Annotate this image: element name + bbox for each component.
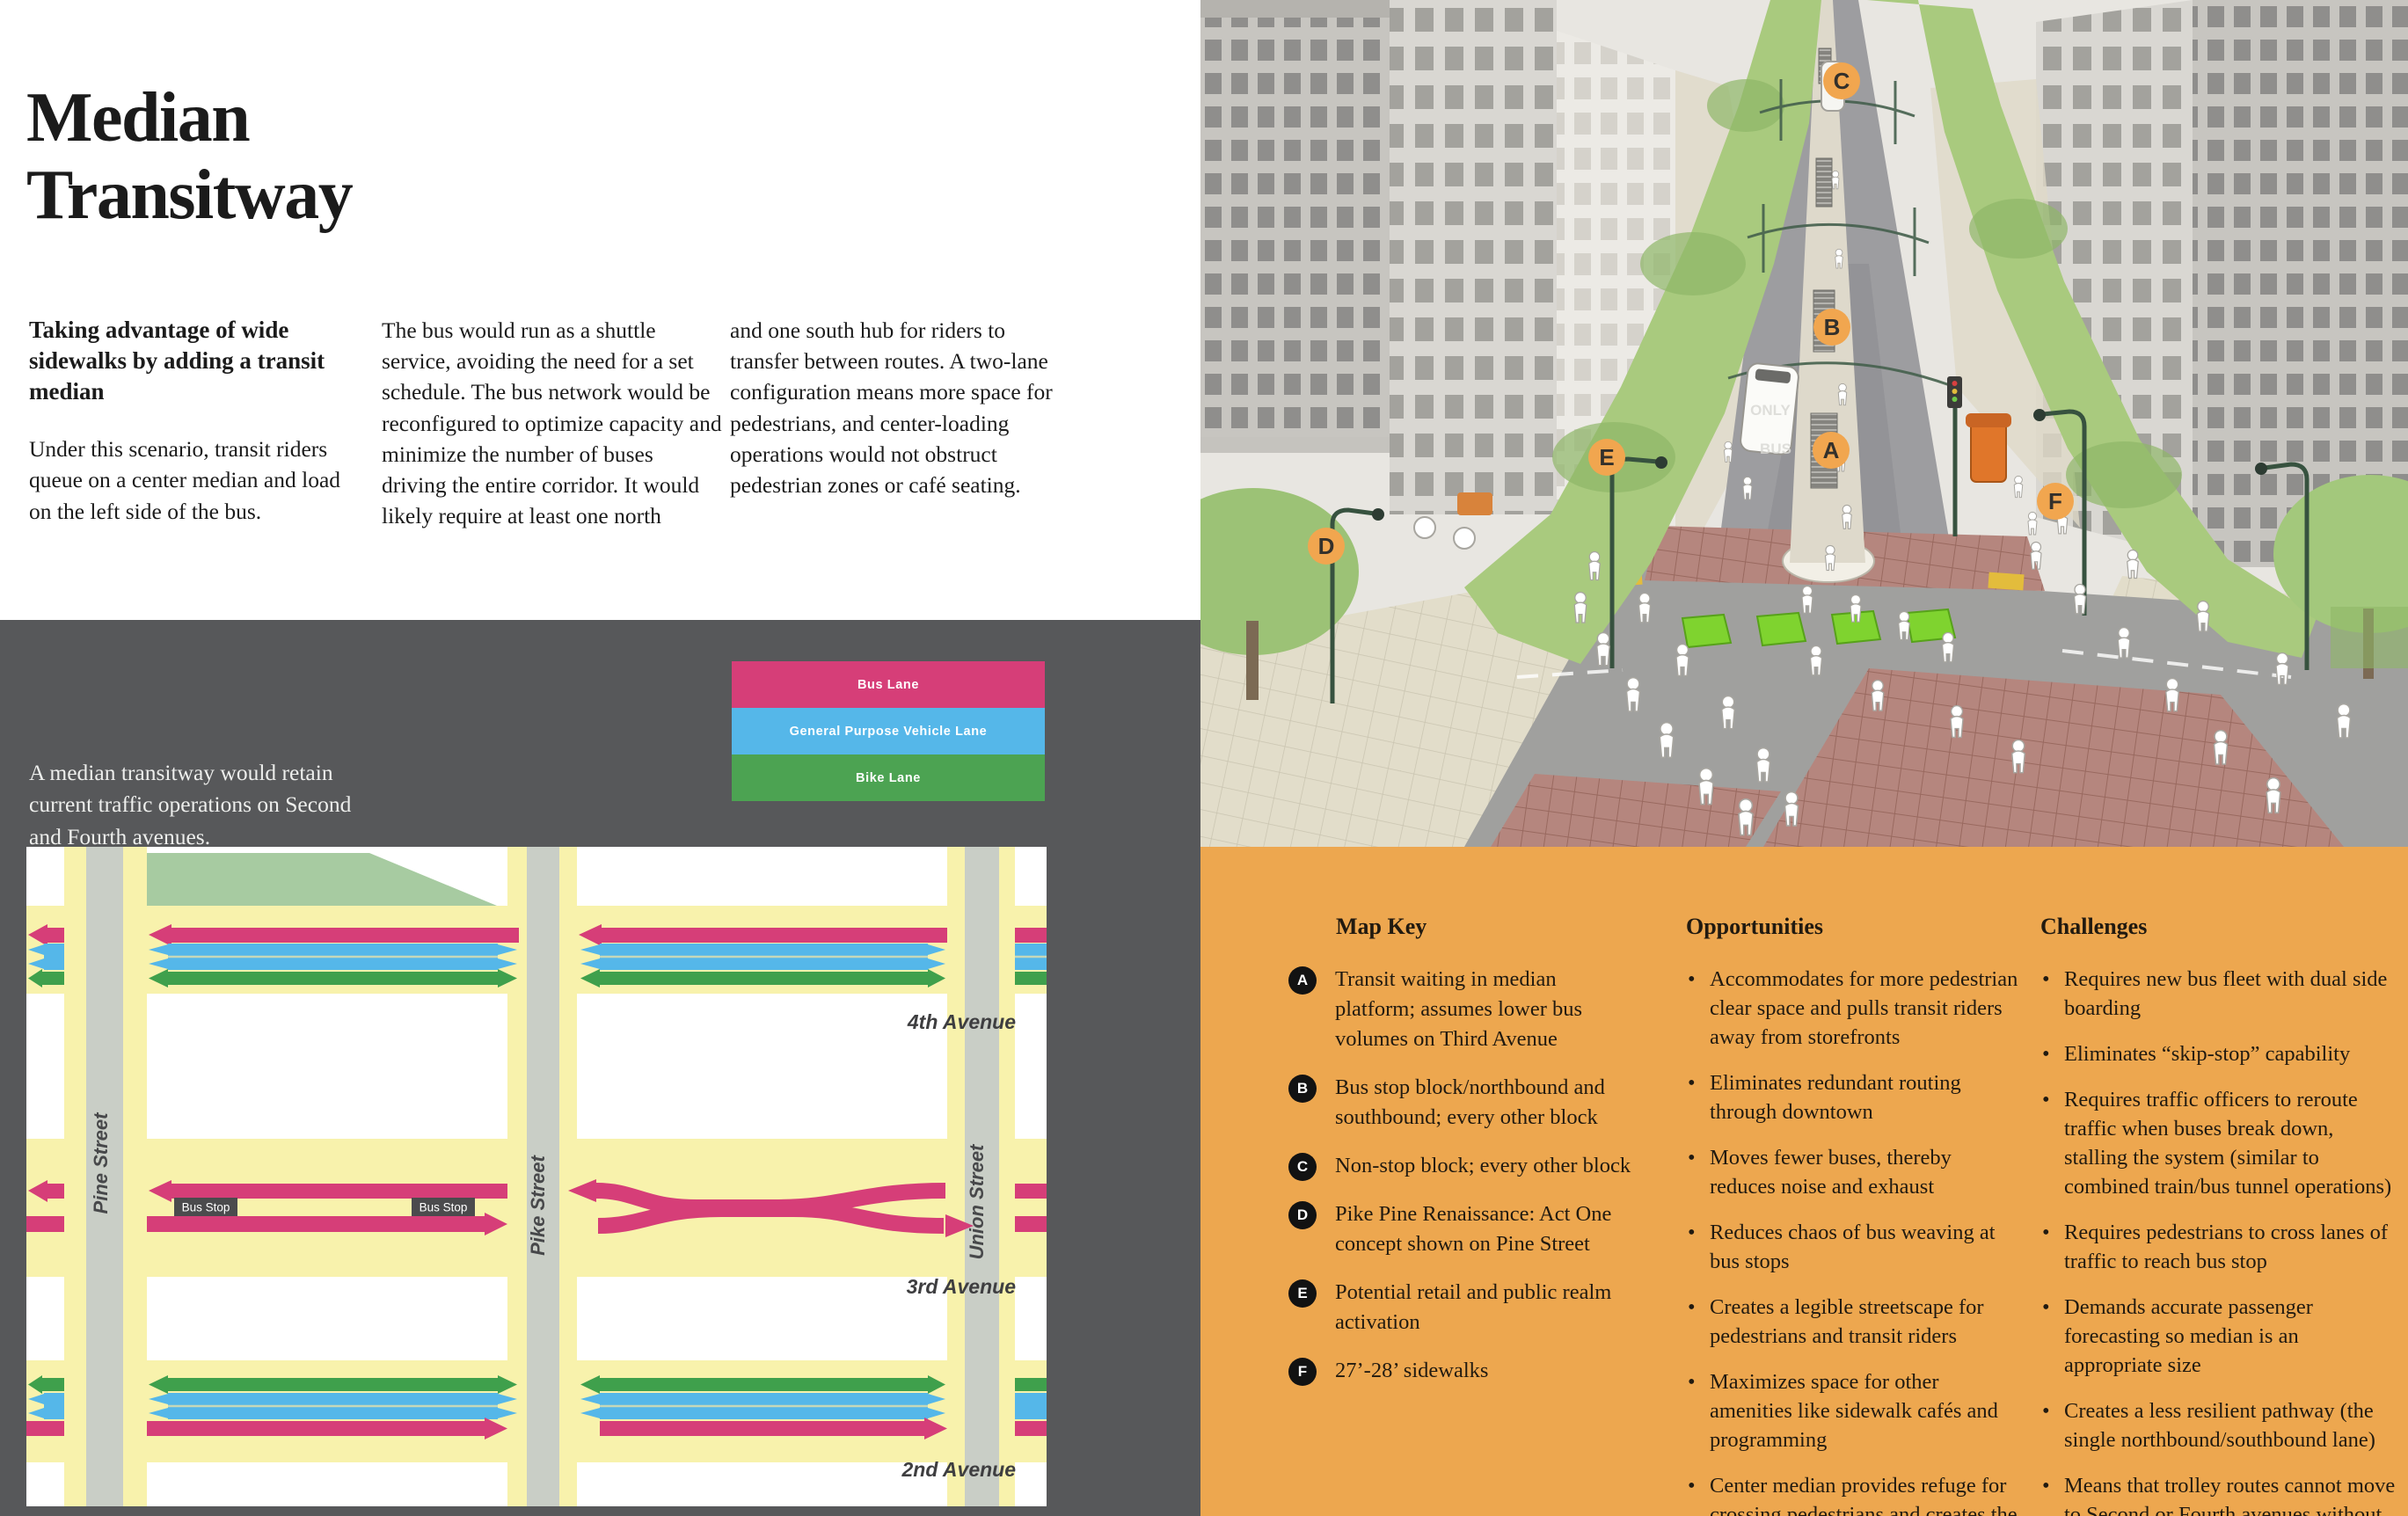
- key-panel: Map Key ATransit waiting in median platf…: [1200, 847, 2408, 1516]
- map-key-text: Non-stop block; every other block: [1335, 1151, 1631, 1181]
- page-title-line2: Transitway: [26, 157, 352, 235]
- svg-text:C: C: [1834, 68, 1850, 94]
- bullet-item: Reduces chaos of bus weaving at bus stop…: [1686, 1218, 2022, 1276]
- map-street-label: Pine Street: [90, 1111, 112, 1214]
- map-key-letter-badge: C: [1288, 1153, 1317, 1181]
- svg-text:Bus Stop: Bus Stop: [420, 1201, 468, 1214]
- bullet-item: Accommodates for more pedestrian clear s…: [1686, 965, 2022, 1052]
- map-key-item-B: BBus stop block/northbound and southboun…: [1288, 1073, 1637, 1133]
- bus-stop-tag: Bus Stop: [174, 1198, 237, 1216]
- challenges-list: Requires new bus fleet with dual side bo…: [2040, 965, 2396, 1516]
- map-street-label: Union Street: [966, 1143, 988, 1259]
- map-avenue-label: 2nd Avenue: [901, 1458, 1016, 1481]
- map-key-letter-badge: F: [1288, 1358, 1317, 1386]
- illustration-marker-C: C: [1823, 62, 1860, 99]
- svg-text:A: A: [1823, 437, 1840, 463]
- legend-bus-lane: Bus Lane: [732, 661, 1045, 708]
- illustration-marker-B: B: [1813, 309, 1850, 346]
- intro-column-1: Taking advantage of wide sidewalks by ad…: [29, 315, 356, 527]
- illustration-marker-A: A: [1813, 432, 1850, 469]
- street-illustration: ONLYBUS ABCDEF: [1200, 0, 2408, 847]
- legend-bike-lane: Bike Lane: [732, 754, 1045, 801]
- street-grid-map: 4th Avenue3rd Avenue2nd AvenuePine Stree…: [26, 847, 1047, 1506]
- map-key-letter-badge: D: [1288, 1201, 1317, 1229]
- map-key-letter-badge: E: [1288, 1279, 1317, 1308]
- map-key-column: Map Key ATransit waiting in median platf…: [1288, 914, 1637, 1404]
- map-key-item-D: DPike Pine Renaissance: Act One concept …: [1288, 1199, 1637, 1259]
- svg-text:D: D: [1318, 533, 1335, 559]
- bullet-item: Requires traffic officers to reroute tra…: [2040, 1085, 2396, 1201]
- page-title: Median Transitway: [26, 79, 352, 236]
- bullet-item: Eliminates redundant routing through dow…: [1686, 1068, 2022, 1126]
- street-grid-map-svg: 4th Avenue3rd Avenue2nd AvenuePine Stree…: [26, 847, 1047, 1506]
- bus-stop-tag: Bus Stop: [412, 1198, 475, 1216]
- map-avenue-label: 4th Avenue: [907, 1010, 1016, 1033]
- challenges-heading: Challenges: [2040, 914, 2396, 940]
- illustration-marker-F: F: [2037, 483, 2074, 520]
- intro-heading: Taking advantage of wide sidewalks by ad…: [29, 315, 356, 407]
- map-key-item-A: ATransit waiting in median platform; ass…: [1288, 965, 1637, 1054]
- bullet-item: Creates a legible streetscape for pedest…: [1686, 1293, 2022, 1351]
- park-block: [115, 853, 497, 906]
- bullet-item: Creates a less resilient pathway (the si…: [2040, 1396, 2396, 1454]
- bullet-item: Requires new bus fleet with dual side bo…: [2040, 965, 2396, 1023]
- svg-text:F: F: [2048, 488, 2062, 514]
- intro-column-2: The bus would run as a shuttle service, …: [382, 315, 723, 531]
- challenges-column: Challenges Requires new bus fleet with d…: [2040, 914, 2396, 1516]
- map-key-item-C: CNon-stop block; every other block: [1288, 1151, 1637, 1181]
- bullet-item: Moves fewer buses, thereby reduces noise…: [1686, 1143, 2022, 1201]
- map-key-text: Bus stop block/northbound and southbound…: [1335, 1073, 1637, 1133]
- map-key-letter-badge: B: [1288, 1075, 1317, 1103]
- map-key-items: ATransit waiting in median platform; ass…: [1288, 965, 1637, 1386]
- bullet-item: Maximizes space for other amenities like…: [1686, 1367, 2022, 1454]
- road-marking-bus: BUS: [1760, 441, 1791, 457]
- map-key-item-E: EPotential retail and public realm activ…: [1288, 1278, 1637, 1337]
- map-key-text: Pike Pine Renaissance: Act One concept s…: [1335, 1199, 1637, 1259]
- map-key-text: 27’-28’ sidewalks: [1335, 1356, 1488, 1386]
- bullet-item: Center median provides refuge for crossi…: [1686, 1471, 2022, 1516]
- opportunities-column: Opportunities Accommodates for more pede…: [1686, 914, 2022, 1516]
- orange-kiosk: [1971, 419, 2006, 482]
- opportunities-list: Accommodates for more pedestrian clear s…: [1686, 965, 2022, 1516]
- lane-legend-rows: Bus LaneGeneral Purpose Vehicle LaneBike…: [732, 661, 1045, 801]
- bullet-item: Demands accurate passenger forecasting s…: [2040, 1293, 2396, 1380]
- bullet-item: Means that trolley routes cannot move to…: [2040, 1471, 2396, 1516]
- dark-map-panel: A median transitway would retain current…: [0, 620, 1200, 1516]
- intro-paragraph-2: The bus would run as a shuttle service, …: [382, 315, 723, 531]
- svg-text:E: E: [1599, 444, 1614, 470]
- road-marking-only: ONLY: [1750, 402, 1791, 419]
- illustration-marker-D: D: [1308, 528, 1345, 565]
- bullet-item: Eliminates “skip-stop” capability: [2040, 1039, 2396, 1068]
- map-key-text: Potential retail and public realm activa…: [1335, 1278, 1637, 1337]
- map-street-label: Pike Street: [527, 1154, 549, 1255]
- page-title-line1: Median: [26, 79, 352, 157]
- map-key-text: Transit waiting in median platform; assu…: [1335, 965, 1637, 1054]
- intro-paragraph-3: and one south hub for riders to transfer…: [730, 315, 1071, 500]
- lane-legend: Bus LaneGeneral Purpose Vehicle LaneBike…: [732, 661, 1045, 801]
- report-page: Median Transitway Taking advantage of wi…: [0, 0, 2408, 1516]
- svg-text:B: B: [1824, 314, 1841, 340]
- street-illustration-svg: ONLYBUS ABCDEF: [1200, 0, 2408, 847]
- bullet-item: Requires pedestrians to cross lanes of t…: [2040, 1218, 2396, 1276]
- intro-column-3: and one south hub for riders to transfer…: [730, 315, 1071, 500]
- map-avenue-label: 3rd Avenue: [907, 1275, 1017, 1298]
- legend-general-purpose-vehicle-lane: General Purpose Vehicle Lane: [732, 708, 1045, 754]
- map-caption: A median transitway would retain current…: [29, 757, 353, 854]
- illustration-marker-E: E: [1588, 439, 1625, 476]
- opportunities-heading: Opportunities: [1686, 914, 2022, 940]
- intro-paragraph-1: Under this scenario, transit riders queu…: [29, 434, 356, 527]
- svg-text:Bus Stop: Bus Stop: [182, 1201, 230, 1214]
- cafe-tables: [1457, 492, 1492, 515]
- map-key-letter-badge: A: [1288, 966, 1317, 995]
- map-key-item-F: F27’-28’ sidewalks: [1288, 1356, 1637, 1386]
- map-key-heading: Map Key: [1336, 914, 1637, 940]
